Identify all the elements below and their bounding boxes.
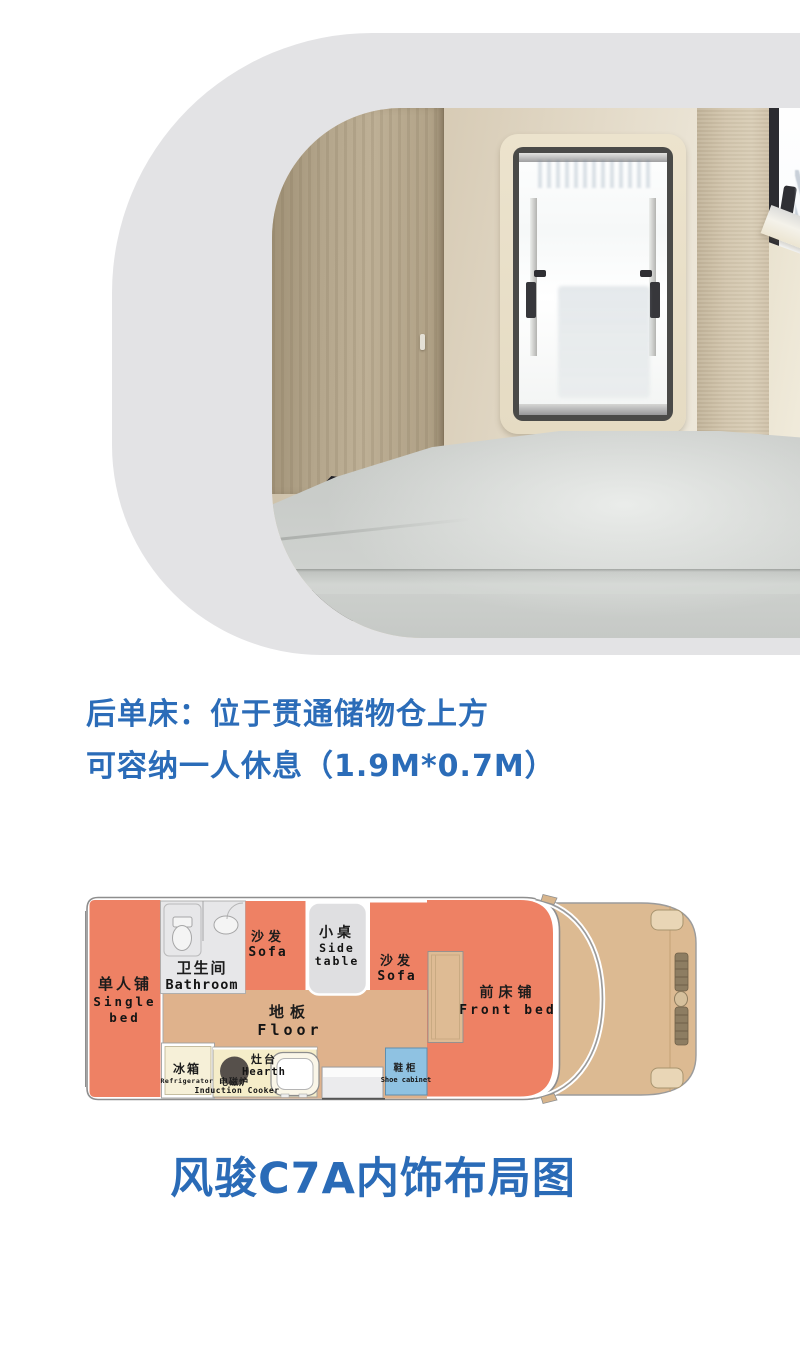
entry-step — [322, 1067, 385, 1099]
window-rail-bottom — [519, 404, 667, 415]
window-strut-right — [649, 198, 656, 356]
label-induction-en: Induction Cooker — [194, 1085, 279, 1095]
window-latch-right — [650, 282, 660, 318]
label-single-bed-zh: 单人铺 — [98, 975, 152, 993]
window-strut-left — [530, 198, 537, 356]
brand-logo-badge — [675, 992, 688, 1007]
label-hearth-en: Hearth — [242, 1066, 286, 1078]
window-knob-right — [640, 270, 652, 277]
label-shoe-cabinet-en: Shoe cabinet — [381, 1076, 432, 1084]
label-side-table-zh: 小桌 — [319, 924, 355, 941]
sink-tab-2 — [299, 1094, 307, 1098]
label-bathroom-zh: 卫生间 — [176, 959, 227, 977]
wood-cabinet — [272, 108, 444, 494]
label-refrigerator-zh: 冰箱 — [173, 1061, 201, 1076]
rear-window — [500, 134, 686, 434]
window-knob-left — [534, 270, 546, 277]
truck-cab — [537, 903, 696, 1095]
label-front-bed-zh: 前床铺 — [480, 984, 537, 1001]
label-sofa-right-en: Sofa — [377, 969, 416, 984]
photo-frame — [112, 33, 800, 655]
label-shoe-cabinet-zh: 鞋柜 — [393, 1062, 418, 1074]
outside-blur-top — [538, 160, 650, 188]
label-sofa-left-en: Sofa — [248, 945, 287, 960]
window-latch-left — [526, 282, 536, 318]
headlight-right — [651, 1068, 683, 1088]
label-front-bed-en: Front bed — [459, 1003, 556, 1018]
caption-text: 后单床：位于贯通储物仓上方 可容纳一人休息（1.9M*0.7M） — [86, 689, 556, 793]
caption-line-1: 后单床：位于贯通储物仓上方 — [86, 689, 556, 741]
wardrobe-cabinet — [428, 952, 463, 1043]
sink-tab-1 — [281, 1094, 289, 1098]
headlight-left — [651, 910, 683, 930]
cabinet-handle — [420, 334, 425, 350]
label-side-table-en1: Side — [319, 941, 355, 955]
page-title: 风骏C7A内饰布局图 — [170, 1144, 576, 1206]
label-floor-en: Floor — [257, 1021, 322, 1039]
label-single-bed-en1: Single — [93, 994, 156, 1009]
mattress-seam-left — [272, 517, 471, 541]
label-bathroom-en: Bathroom — [165, 977, 238, 993]
rv-interior-photo — [272, 108, 800, 638]
label-sofa-left-zh: 沙发 — [251, 929, 285, 945]
label-single-bed-en2: bed — [109, 1010, 141, 1025]
label-floor-zh: 地板 — [269, 1003, 311, 1021]
cab-body — [537, 903, 696, 1095]
label-side-table-en2: table — [315, 954, 360, 968]
label-refrigerator-en: Refrigerator — [161, 1077, 214, 1085]
floorplan-diagram: 单人铺 Single bed 卫生间 Bathroom 沙发 Sofa 小桌 S… — [85, 893, 705, 1105]
label-hearth-zh: 灶台 — [251, 1052, 277, 1066]
outside-blur-center — [558, 286, 650, 398]
caption-line-2: 可容纳一人休息（1.9M*0.7M） — [86, 741, 556, 793]
mattress-seam — [272, 569, 800, 594]
label-sofa-right-zh: 沙发 — [380, 953, 414, 969]
